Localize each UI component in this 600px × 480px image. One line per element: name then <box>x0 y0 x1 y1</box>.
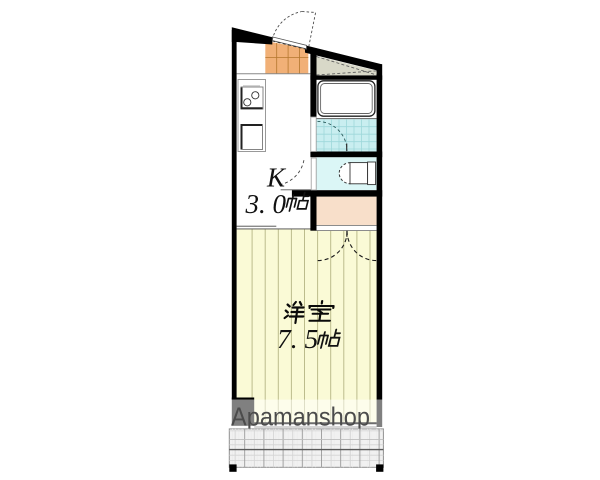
svg-text:3. 0: 3. 0 <box>245 189 287 219</box>
svg-text:K: K <box>266 162 287 192</box>
svg-text:Apamanshop: Apamanshop <box>231 403 370 431</box>
svg-text:7. 5: 7. 5 <box>277 323 318 354</box>
